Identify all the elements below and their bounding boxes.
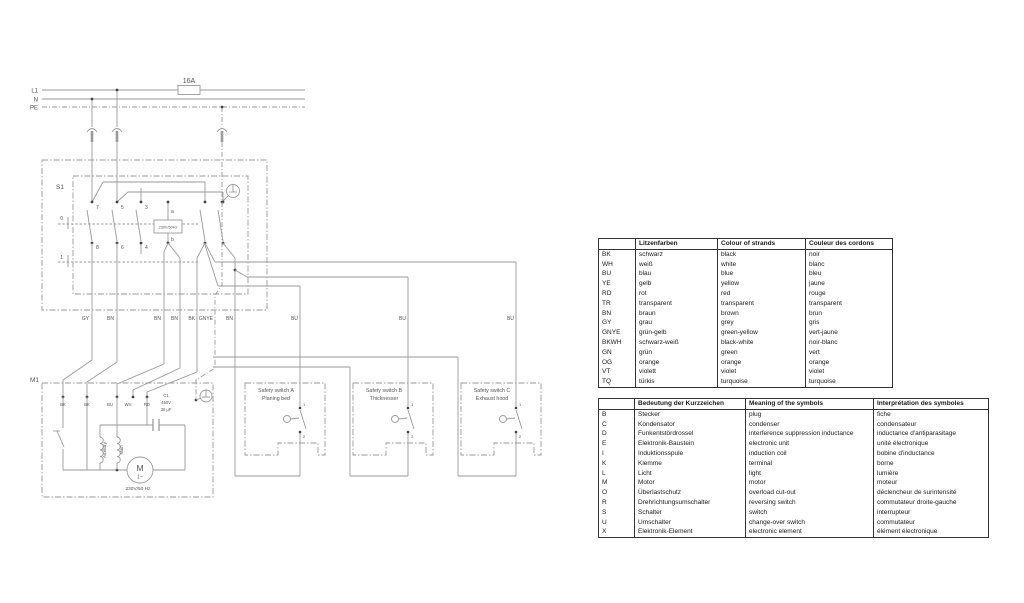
- table-cell: terminal: [746, 459, 874, 469]
- table-cell: élément électronique: [874, 527, 989, 537]
- table-row: VTviolettvioletviolet: [599, 367, 893, 377]
- contact-label: 4: [145, 245, 148, 251]
- table-row: BKschwarzblacknoir: [599, 249, 893, 259]
- wire-label: BU: [399, 316, 406, 322]
- table-cell: black: [718, 249, 806, 259]
- column-header: [599, 399, 635, 410]
- table-row: CKondensatorcondensercondensateur: [599, 420, 989, 430]
- table-cell: motor: [746, 478, 874, 488]
- plug-icon: [217, 129, 227, 143]
- gnye-earth-wire: [196, 202, 222, 400]
- terminal-label: BU: [107, 402, 113, 407]
- capacitor-voltage: 450V: [161, 400, 171, 405]
- table-cell: reversing switch: [746, 498, 874, 508]
- table-cell: noir-blanc: [806, 338, 893, 348]
- safety-a-subtitle: Planing bed: [262, 396, 290, 402]
- table-cell: condenser: [746, 420, 874, 430]
- wire-label: BK: [188, 316, 195, 322]
- rail-label-pe: PE: [30, 106, 38, 112]
- table-cell: K: [599, 459, 635, 469]
- table-cell: Induktionsspule: [635, 449, 746, 459]
- table-row: GNgrüngreenvert: [599, 348, 893, 358]
- table-header-row: LitzenfarbenColour of strandsCouleur des…: [599, 239, 893, 250]
- rail-label-l1: L1: [31, 89, 38, 95]
- motor-letter: M: [136, 463, 143, 473]
- table-row: GNYEgrün-gelbgreen-yellowvert-jaune: [599, 328, 893, 338]
- table-cell: borne: [874, 459, 989, 469]
- table-row: LLichtlightlumière: [599, 469, 989, 479]
- table-cell: red: [718, 289, 806, 299]
- table-cell: S: [599, 508, 635, 518]
- schematic-labels: L1 N PE 16A S1 7 5 3 a 8 6 4 b 0 1 230V/…: [30, 78, 522, 492]
- table-cell: electronic element: [746, 527, 874, 537]
- table-cell: grün: [636, 348, 718, 358]
- position-label: 1: [60, 255, 63, 261]
- table-row: BNbraunbrownbrun: [599, 309, 893, 319]
- contact-label: 6: [121, 245, 124, 251]
- table-cell: unité électronique: [874, 439, 989, 449]
- contact-label: 1: [411, 402, 414, 407]
- table-cell: Schalter: [635, 508, 746, 518]
- table-row: UUmschalterchange-over switchcommutateur: [599, 518, 989, 528]
- table-cell: orange: [806, 358, 893, 368]
- table-cell: violett: [636, 367, 718, 377]
- table-cell: transparent: [636, 299, 718, 309]
- table-cell: C: [599, 420, 635, 430]
- module-label: 230V/50Hz: [159, 226, 178, 230]
- table-cell: OG: [599, 358, 636, 368]
- table-cell: Überlastschutz: [635, 488, 746, 498]
- column-header: Couleur des cordons: [806, 239, 893, 250]
- table-row: BUblaubluebleu: [599, 269, 893, 279]
- table-row: BSteckerplugfiche: [599, 409, 989, 419]
- table-cell: black-white: [718, 338, 806, 348]
- table-cell: RD: [599, 289, 636, 299]
- overload-cutout-symbol: [53, 397, 64, 470]
- table-cell: Umschalter: [635, 518, 746, 528]
- table-cell: L: [599, 469, 635, 479]
- table-cell: blue: [718, 269, 806, 279]
- table-cell: electronic unit: [746, 439, 874, 449]
- table-cell: Motor: [635, 478, 746, 488]
- table-cell: braun: [636, 309, 718, 319]
- table-cell: TQ: [599, 377, 636, 387]
- table-row: MMotormotormoteur: [599, 478, 989, 488]
- terminal-label: RD: [144, 402, 150, 407]
- table-cell: schwarz: [636, 249, 718, 259]
- position-label: 0: [60, 216, 63, 222]
- table-cell: yellow: [718, 279, 806, 289]
- main-coil-label: Main: [119, 445, 124, 455]
- table-row: TQtürkisturquoiseturquoise: [599, 377, 893, 387]
- table-cell: turquoise: [806, 377, 893, 387]
- contact-label: 2: [411, 434, 414, 439]
- main-coil: [117, 397, 120, 470]
- table-cell: commutateur: [874, 518, 989, 528]
- safety-c-subtitle: Exhaust hood: [476, 396, 508, 402]
- terminal-label: BK: [60, 402, 66, 407]
- column-header: Litzenfarben: [636, 239, 718, 250]
- table-cell: BU: [599, 269, 636, 279]
- table-row: SSchalterswitchinterrupteur: [599, 508, 989, 518]
- rail-label-n: N: [34, 98, 38, 104]
- table-cell: vert: [806, 348, 893, 358]
- table-cell: türkis: [636, 377, 718, 387]
- wire-label: GNYE: [199, 316, 214, 322]
- table-cell: Elektronik-Element: [635, 527, 746, 537]
- table-cell: Licht: [635, 469, 746, 479]
- contact-label: 5: [121, 205, 124, 211]
- table-cell: light: [746, 469, 874, 479]
- table-cell: plug: [746, 409, 874, 419]
- table-cell: interference suppression inductance: [746, 429, 874, 439]
- table-cell: Stecker: [635, 409, 746, 419]
- table-row: XElektronik-Elementelectronic elementélé…: [599, 527, 989, 537]
- table-cell: orange: [636, 358, 718, 368]
- table-cell: VT: [599, 367, 636, 377]
- table-cell: switch: [746, 508, 874, 518]
- table-cell: BN: [599, 309, 636, 319]
- contact-label: 1: [519, 402, 522, 407]
- table-cell: fiche: [874, 409, 989, 419]
- table-cell: interrupteur: [874, 508, 989, 518]
- column-header: Interprétation des symboles: [874, 399, 989, 410]
- symbol-legend-table: Bedeutung der KurzzeichenMeaning of the …: [598, 398, 989, 538]
- contact-label: a: [171, 209, 174, 215]
- terminal-label: WH: [125, 402, 132, 407]
- table-row: YEgelbyellowjaune: [599, 279, 893, 289]
- earth-symbol: [195, 390, 212, 402]
- capacitor-symbol: [100, 397, 185, 470]
- table-cell: jaune: [806, 279, 893, 289]
- wire-label: BN: [154, 316, 161, 322]
- table-cell: white: [718, 260, 806, 270]
- table-cell: moteur: [874, 478, 989, 488]
- table-cell: R: [599, 498, 635, 508]
- contact-label: 3: [145, 205, 148, 211]
- s1-label: S1: [56, 184, 64, 191]
- wire-label: BN: [107, 316, 114, 322]
- contact-label: 2: [303, 434, 306, 439]
- plug-icon: [87, 129, 97, 143]
- table-cell: violet: [718, 367, 806, 377]
- table-row: BKWHschwarz-weißblack-whitenoir-blanc: [599, 338, 893, 348]
- table-cell: déclencheur de surintensité: [874, 488, 989, 498]
- table-cell: E: [599, 439, 635, 449]
- table-cell: commutateur droite-gauche: [874, 498, 989, 508]
- table-cell: bleu: [806, 269, 893, 279]
- table-cell: green-yellow: [718, 328, 806, 338]
- table-row: EElektronik-Bausteinelectronic unitunité…: [599, 439, 989, 449]
- table-cell: Kondensator: [635, 420, 746, 430]
- table-row: TRtransparenttransparenttransparent: [599, 299, 893, 309]
- table-cell: green: [718, 348, 806, 358]
- plug-icon: [112, 129, 122, 143]
- table-cell: change-over switch: [746, 518, 874, 528]
- table-row: OGorangeorangeorange: [599, 358, 893, 368]
- table-cell: U: [599, 518, 635, 528]
- table-row: KKlemmeterminalborne: [599, 459, 989, 469]
- table-cell: schwarz-weiß: [636, 338, 718, 348]
- fuse-symbol: [178, 86, 200, 95]
- table-cell: GNYE: [599, 328, 636, 338]
- safety-c-title: Safety switch C: [474, 388, 511, 394]
- table-cell: turquoise: [718, 377, 806, 387]
- table-cell: blau: [636, 269, 718, 279]
- table-cell: condensateur: [874, 420, 989, 430]
- table-cell: gris: [806, 318, 893, 328]
- table-row: DFunkentstördrosselinterference suppress…: [599, 429, 989, 439]
- table-cell: O: [599, 488, 635, 498]
- motor-phase: 1~: [137, 475, 143, 481]
- table-row: RDrehrichtungsumschalterreversing switch…: [599, 498, 989, 508]
- table-cell: induction coil: [746, 449, 874, 459]
- table-cell: blanc: [806, 260, 893, 270]
- table-cell: transparent: [718, 299, 806, 309]
- table-cell: TR: [599, 299, 636, 309]
- table-cell: rouge: [806, 289, 893, 299]
- table-cell: D: [599, 429, 635, 439]
- column-header: Colour of strands: [718, 239, 806, 250]
- terminal-label: BK: [84, 402, 90, 407]
- table-cell: M: [599, 478, 635, 488]
- table-cell: YE: [599, 279, 636, 289]
- table-cell: brun: [806, 309, 893, 319]
- safety-b-subtitle: Thicknesser: [370, 396, 399, 402]
- aux-coil-label: Auxiliary: [102, 441, 107, 458]
- safety-switch-feeds: [213, 258, 516, 476]
- table-cell: overload cut-out: [746, 488, 874, 498]
- safety-a-title: Safety switch A: [258, 388, 294, 394]
- table-cell: inductance d'antiparasitage: [874, 429, 989, 439]
- capacitor-capacity: 30 µF: [161, 407, 172, 412]
- table-cell: BKWH: [599, 338, 636, 348]
- table-cell: rot: [636, 289, 718, 299]
- table-cell: orange: [718, 358, 806, 368]
- table-cell: noir: [806, 249, 893, 259]
- table-cell: B: [599, 409, 635, 419]
- table-cell: Funkentstördrossel: [635, 429, 746, 439]
- motor-block-m1: [42, 360, 213, 497]
- table-cell: Klemme: [635, 459, 746, 469]
- wiring-diagram-page: L1 N PE 16A S1 7 5 3 a 8 6 4 b 0 1 230V/…: [0, 0, 1024, 603]
- contact-label: 8: [96, 245, 99, 251]
- safety-b-title: Safety switch B: [366, 388, 403, 394]
- table-cell: bobine d'inductance: [874, 449, 989, 459]
- table-cell: X: [599, 527, 635, 537]
- power-rails: [42, 86, 305, 203]
- table-cell: grün-gelb: [636, 328, 718, 338]
- table-cell: I: [599, 449, 635, 459]
- wire-label: BU: [291, 316, 298, 322]
- wire-label: GY: [82, 316, 90, 322]
- wire-label: BN: [171, 316, 178, 322]
- table-header-row: Bedeutung der KurzzeichenMeaning of the …: [599, 399, 989, 410]
- table-row: WHweißwhiteblanc: [599, 260, 893, 270]
- table-row: OÜberlastschutzoverload cut-outdéclenche…: [599, 488, 989, 498]
- capacitor-name: C1: [163, 393, 169, 398]
- table-cell: grau: [636, 318, 718, 328]
- table-cell: WH: [599, 260, 636, 270]
- table-row: GYgraugreygris: [599, 318, 893, 328]
- motor-rating: 230V/50 Hz: [125, 486, 151, 492]
- table-cell: Elektronik-Baustein: [635, 439, 746, 449]
- table-cell: brown: [718, 309, 806, 319]
- wire-color-table: LitzenfarbenColour of strandsCouleur des…: [598, 238, 893, 388]
- contact-label: 2: [519, 434, 522, 439]
- contact-label: 1: [303, 402, 306, 407]
- table-cell: weiß: [636, 260, 718, 270]
- column-header: Bedeutung der Kurzzeichen: [635, 399, 746, 410]
- table-cell: BK: [599, 249, 636, 259]
- table-cell: GN: [599, 348, 636, 358]
- contact-label: 7: [96, 205, 99, 211]
- wire-label: BN: [226, 316, 233, 322]
- wire-label: BU: [507, 316, 514, 322]
- table-row: RDrotredrouge: [599, 289, 893, 299]
- fuse-label: 16A: [183, 78, 196, 85]
- column-header: [599, 239, 636, 250]
- m1-label: M1: [30, 377, 39, 384]
- table-cell: violet: [806, 367, 893, 377]
- table-cell: lumière: [874, 469, 989, 479]
- table-cell: GY: [599, 318, 636, 328]
- switch-block-s1: [42, 160, 267, 372]
- column-header: Meaning of the symbols: [746, 399, 874, 410]
- table-cell: vert-jaune: [806, 328, 893, 338]
- table-cell: grey: [718, 318, 806, 328]
- table-row: IInduktionsspuleinduction coilbobine d'i…: [599, 449, 989, 459]
- table-cell: gelb: [636, 279, 718, 289]
- table-cell: Drehrichtungsumschalter: [635, 498, 746, 508]
- table-cell: transparent: [806, 299, 893, 309]
- contact-label: b: [171, 237, 174, 243]
